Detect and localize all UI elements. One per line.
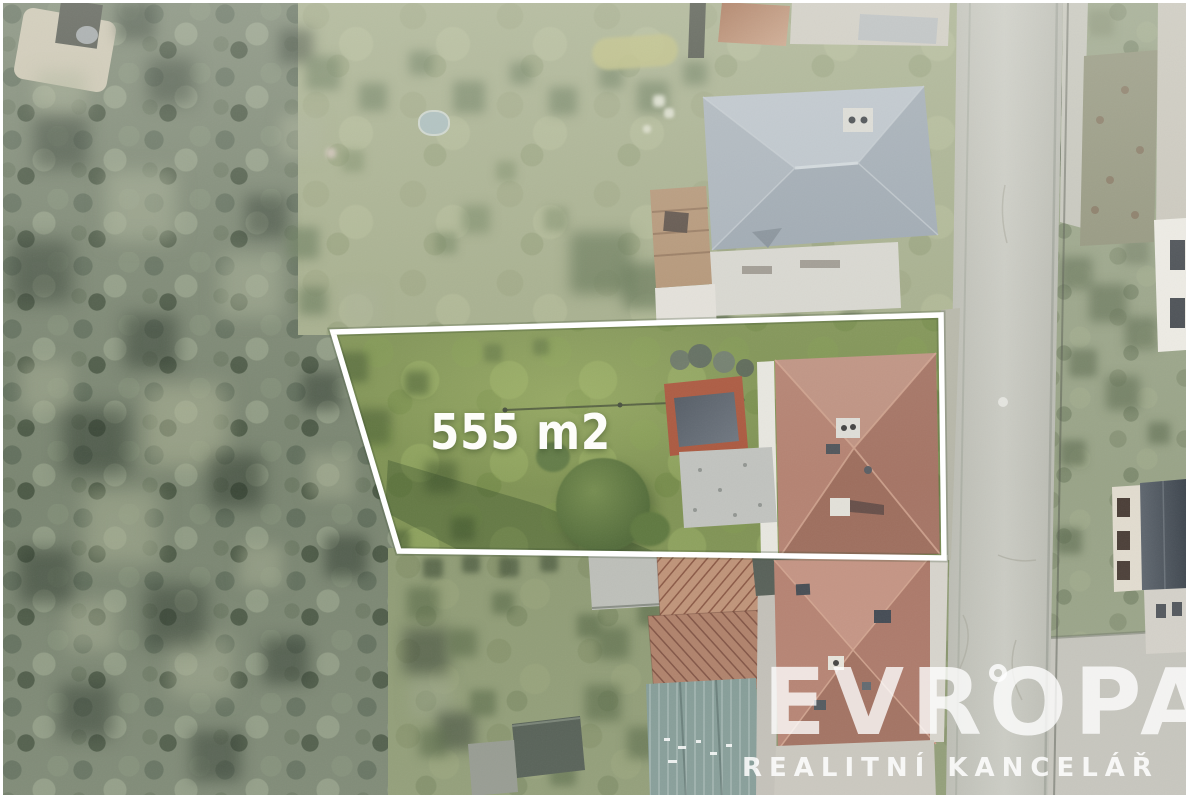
right-house-window [1117,498,1130,517]
rusty-roof-shed [718,2,790,46]
house-side-walkway [930,555,948,742]
photo-border-right [1186,0,1199,799]
right-house-window [1117,561,1130,580]
plot-area-label: 555 m2 [430,408,611,457]
dark-fence [688,0,706,58]
chimney [836,418,860,438]
roadside-features [1040,0,1188,799]
right-house-annex [1144,588,1188,654]
rear-courtyard [774,740,936,799]
aerial-photo: 555 m2 EVROPA REALITNÍ KANCELÁŘ [0,0,1199,799]
roof-skylight [874,610,891,623]
white-building-window [1170,298,1185,328]
chimney [843,108,873,132]
gray-slab-roof [588,546,662,610]
flat-roof-extension [679,447,777,528]
bottom-right-driveway [1040,630,1186,799]
lower-structures [468,532,948,799]
photo-border-top [0,0,1199,3]
right-house-window [1117,531,1130,550]
street [941,0,1068,799]
salmon-roof-house [774,554,936,750]
plot-house-roof [775,353,940,558]
roof-skylight [796,584,811,596]
garden-bed [1080,50,1158,246]
small-shed [468,740,518,796]
far-right-path [1156,0,1186,236]
rock-row [670,344,754,377]
photo-border-bottom [0,795,1199,799]
teal-roof-building [646,678,762,799]
top-street-structures [688,0,950,58]
chimney [830,498,850,516]
gray-roof-shed [858,14,938,44]
garden-deck [650,186,712,288]
white-building-window [1170,240,1185,270]
roof-vent [814,700,826,710]
house-extension-roof [708,242,901,316]
roof-vent [826,444,840,454]
deck-table [663,211,689,233]
photo-border-left [0,0,3,799]
garage-slate-panel [674,392,739,447]
white-building [1154,218,1186,352]
